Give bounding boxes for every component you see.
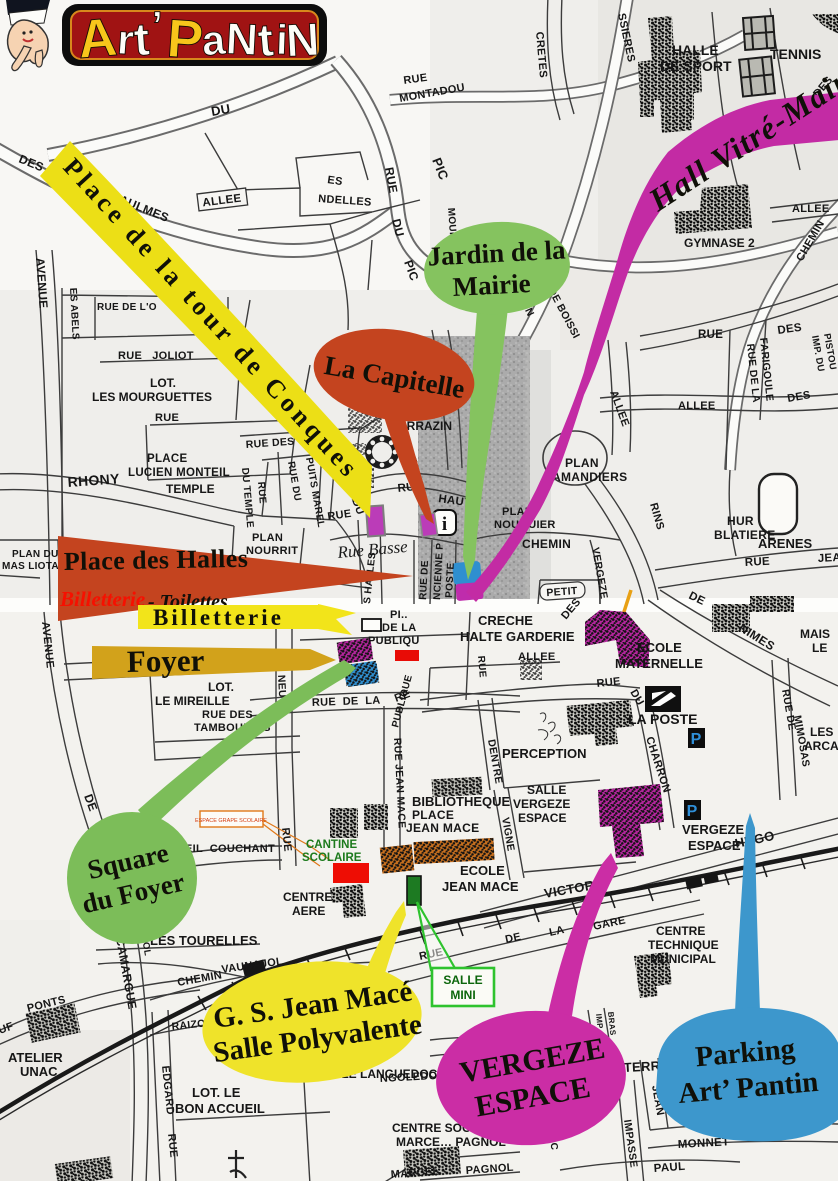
svg-text:Mairie: Mairie (452, 268, 531, 302)
svg-text:PLACE: PLACE (412, 808, 454, 822)
svg-text:ALLEE: ALLEE (518, 651, 556, 663)
svg-text:RUE: RUE (475, 655, 488, 678)
svg-text:CANTINE: CANTINE (306, 839, 357, 851)
svg-text:RUE: RUE (698, 329, 723, 341)
svg-text:LES: LES (810, 725, 833, 739)
svg-text:LE MIREILLE: LE MIREILLE (155, 694, 230, 708)
svg-text:SALLE: SALLE (527, 783, 566, 797)
svg-text:BON ACCUEIL: BON ACCUEIL (175, 1101, 265, 1116)
svg-text:DE LA: DE LA (382, 622, 417, 634)
svg-text:LOT. LE: LOT. LE (192, 1085, 241, 1100)
svg-text:PI..: PI.. (390, 609, 408, 621)
svg-text:RUE: RUE (155, 412, 179, 424)
svg-text:ECOLE: ECOLE (637, 640, 682, 655)
svg-text:PUBLIQU: PUBLIQU (368, 635, 420, 647)
svg-text:CHEMIN: CHEMIN (522, 537, 571, 551)
svg-text:PLAN: PLAN (252, 532, 283, 544)
svg-text:A: A (75, 7, 119, 70)
svg-text:Foyer: Foyer (127, 643, 205, 679)
svg-text:ECOLE: ECOLE (460, 863, 505, 878)
svg-text:a: a (200, 16, 228, 65)
svg-text:ESPACE: ESPACE (688, 838, 741, 853)
svg-text:DE SPORT: DE SPORT (660, 58, 732, 74)
svg-text:LUCIEN MONTEIL: LUCIEN MONTEIL (128, 467, 230, 479)
svg-text:HALTE GARDERIE: HALTE GARDERIE (460, 629, 575, 644)
svg-text:AMANDIERS: AMANDIERS (552, 470, 627, 484)
svg-text:RUE: RUE (596, 676, 621, 690)
svg-text:LOT.: LOT. (150, 376, 176, 390)
svg-text:N: N (225, 14, 259, 65)
svg-text:RUE DE: RUE DE (418, 560, 431, 600)
svg-text:UNAC: UNAC (20, 1064, 58, 1079)
svg-text:GYMNASE 2: GYMNASE 2 (684, 236, 755, 250)
svg-text:LA POSTE: LA POSTE (628, 711, 698, 727)
svg-text:SCOLAIRE: SCOLAIRE (302, 852, 362, 864)
svg-text:ATELIER: ATELIER (8, 1050, 63, 1065)
svg-text:JEAN MACE: JEAN MACE (406, 821, 479, 835)
svg-text:TENNIS: TENNIS (770, 46, 821, 62)
svg-text:PLAN DU: PLAN DU (12, 549, 59, 560)
svg-text:RUE: RUE (165, 1133, 179, 1158)
svg-text:TEMPLE: TEMPLE (166, 482, 215, 496)
svg-text:RUE DES: RUE DES (202, 709, 253, 721)
svg-text:ALLEE: ALLEE (678, 400, 716, 412)
svg-text:RUE: RUE (745, 556, 771, 569)
svg-text:CRECHE: CRECHE (478, 613, 533, 628)
svg-text:AERE: AERE (292, 904, 325, 918)
svg-text:CENTRE: CENTRE (283, 890, 332, 904)
svg-text:POSTE: POSTE (444, 562, 457, 598)
svg-text:ARENES: ARENES (758, 536, 813, 551)
svg-text:HALLE: HALLE (672, 42, 719, 58)
svg-text:CENTRE: CENTRE (656, 924, 705, 938)
svg-text:MATERNELLE: MATERNELLE (615, 656, 703, 671)
svg-text:VERGEZE: VERGEZE (682, 822, 744, 837)
svg-text:i: i (442, 514, 447, 535)
svg-text:TECHNIQUE: TECHNIQUE (648, 938, 719, 952)
svg-text:P: P (687, 803, 698, 820)
svg-text:’: ’ (152, 5, 163, 47)
svg-text:LES TOURELLES: LES TOURELLES (150, 933, 258, 948)
svg-text:PAUL: PAUL (653, 1161, 685, 1175)
svg-text:ESPACE GRAPE SCOLAIRE: ESPACE GRAPE SCOLAIRE (195, 818, 267, 824)
svg-text:RUE DE L'O: RUE DE L'O (97, 302, 157, 313)
svg-text:RUE: RUE (255, 481, 268, 504)
svg-text:JEAN: JEAN (818, 551, 838, 565)
svg-text:RUE DE LA: RUE DE LA (312, 695, 381, 709)
svg-text:JEAN MACE: JEAN MACE (442, 879, 519, 894)
svg-text:NOURRIT: NOURRIT (246, 545, 298, 557)
svg-text:SALLE: SALLE (443, 973, 482, 987)
svg-text:Billetterie: Billetterie (59, 587, 145, 611)
svg-text:VERGEZE: VERGEZE (513, 797, 570, 811)
svg-text:MAIS: MAIS (800, 627, 830, 641)
svg-text:MUNICIPAL: MUNICIPAL (650, 952, 716, 966)
svg-text:PLACE: PLACE (147, 453, 188, 465)
svg-text:LES MOURGUETTES: LES MOURGUETTES (92, 390, 212, 404)
svg-text:PLAN: PLAN (565, 456, 599, 470)
svg-text:HUR: HUR (727, 514, 754, 528)
svg-text:EIL COUCHANT: EIL COUCHANT (185, 843, 275, 855)
svg-text:RUE: RUE (279, 827, 293, 852)
svg-text:MINI: MINI (450, 988, 475, 1002)
svg-text:PERCEPTION: PERCEPTION (502, 746, 587, 761)
svg-text:N: N (285, 13, 321, 67)
svg-text:LOT.: LOT. (208, 680, 234, 694)
svg-text:ES: ES (327, 174, 344, 188)
svg-text:LE: LE (812, 641, 827, 655)
svg-text:Place des Halles: Place des Halles (64, 544, 248, 576)
svg-text:ESPACE: ESPACE (518, 811, 566, 825)
svg-text:ALLEE: ALLEE (792, 203, 830, 215)
svg-text:BIBLIOTHEQUE: BIBLIOTHEQUE (412, 794, 511, 809)
svg-text:Billetterie: Billetterie (153, 605, 281, 630)
svg-text:P: P (691, 731, 702, 748)
svg-text:RUE JOLIOT: RUE JOLIOT (118, 350, 194, 362)
